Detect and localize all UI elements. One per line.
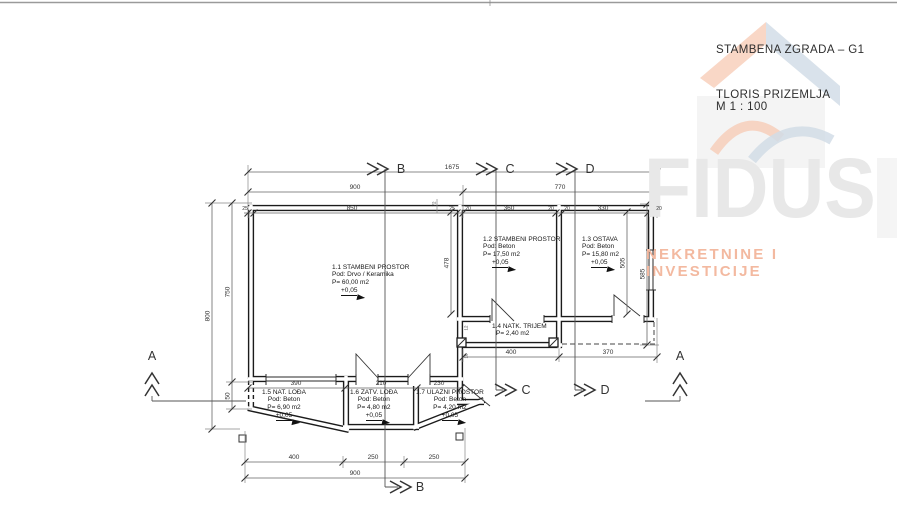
dim-bottom-total: 900 [350, 470, 361, 477]
dim-height-wing-inner: 505 [620, 258, 627, 269]
room-level-marker: +0,05 [442, 412, 458, 420]
project-title: STAMBENA ZGRADA – G1 [716, 44, 864, 56]
dim-wall-20: 20 [465, 206, 471, 212]
room-name: 1.7 ULAZNI PROSTOR [416, 389, 484, 396]
dim-trijem-width: 400 [506, 349, 517, 356]
dim-loggia-15: 390 [291, 380, 302, 387]
sheet-border [0, 0, 897, 6]
room-name: 1.5 NAT. LOĐA [262, 389, 306, 396]
room-level-marker: +0,05 [591, 259, 607, 267]
section-marker-c-top: C [505, 162, 514, 176]
section-marker-a-right: A [676, 349, 684, 363]
canopy-dashed-edge [562, 322, 657, 344]
room-label-1-7: 1.7 ULAZNI PROSTOR Pod: Beton P= 4,20 m2… [416, 389, 484, 421]
room-name: 1.4 NATK. TRIJEM [492, 323, 547, 330]
dim-bottom-seg1: 400 [289, 454, 300, 461]
room-label-1-4: 1.4 NATK. TRIJEM P= 2,40 m2 [492, 323, 547, 338]
dim-wall-72: 72 [432, 201, 437, 206]
dim-wall-18: 18 [464, 353, 469, 358]
dim-inner-main: 850 [347, 205, 358, 212]
dim-loggia-16: 210 [376, 380, 387, 387]
room-floor: Pod: Beton [262, 396, 306, 403]
dimension-lines [205, 165, 661, 483]
room-label-1-5: 1.5 NAT. LOĐA Pod: Beton P= 6,90 m2 +0,0… [262, 389, 306, 421]
dim-wall-25: 25 [242, 206, 248, 212]
section-marker-a-left: A [148, 349, 156, 363]
room-name: 1.3 OSTAVA [582, 236, 619, 243]
room-name: 1.6 ZATV. LOĐA [350, 389, 398, 396]
section-marker-d-top: D [585, 162, 594, 176]
section-lines [145, 163, 687, 493]
dim-inner-r13: 330 [598, 205, 609, 212]
room-area: P= 4,20 m2 [416, 404, 484, 411]
dim-bottom-seg3: 250 [429, 454, 440, 461]
dim-span-wing: 770 [555, 184, 566, 191]
dim-canopy-width: 370 [603, 349, 614, 356]
drawing-title: TLORIS PRIZEMLJA [716, 89, 830, 101]
section-marker-b-bottom: B [416, 480, 424, 494]
dim-height-plinth: 50 [225, 392, 232, 399]
section-marker-b-top: B [397, 162, 405, 176]
room-floor: Pod: Beton [350, 396, 398, 403]
dim-height-wing: 585 [640, 269, 647, 280]
room-level-marker: +0,05 [366, 412, 382, 420]
dim-loggia-17: 230 [434, 380, 445, 387]
room-area: P= 60,00 m2 [332, 279, 409, 286]
dim-overall-width: 1675 [445, 164, 459, 171]
room-floor: Pod: Beton [483, 243, 560, 250]
room-level-marker: +0,05 [276, 412, 292, 420]
floor-plan-sheet: FIDUS NEKRETNINE I INVESTICIJE STAMBENA … [0, 0, 897, 525]
room-area: P= 2,40 m2 [496, 330, 547, 337]
dim-wall-12: 12 [464, 325, 469, 330]
watermark-brand: FIDUS [644, 146, 876, 230]
dim-inner-r12: 360 [504, 205, 515, 212]
dim-span-main: 900 [350, 184, 361, 191]
section-marker-c-bottom: C [521, 383, 530, 397]
room-floor: Pod: Beton [416, 396, 484, 403]
room-floor: Pod: Beton [582, 243, 619, 250]
dim-bottom-seg2: 250 [368, 454, 379, 461]
room-name: 1.2 STAMBENI PROSTOR [483, 236, 560, 243]
room-area: P= 17,50 m2 [483, 251, 560, 258]
dim-wall-25: 25 [449, 206, 455, 212]
room-label-1-3: 1.3 OSTAVA Pod: Beton P= 15,80 m2 +0,05 [582, 236, 619, 268]
dim-wall-20: 20 [548, 206, 554, 212]
section-marker-d-bottom: D [600, 383, 609, 397]
dim-height-r12: 478 [444, 258, 451, 269]
dim-wall-20: 20 [656, 206, 662, 212]
watermark-tagline: NEKRETNINE I INVESTICIJE [646, 246, 897, 280]
room-area: P= 15,80 m2 [582, 251, 619, 258]
door-swings [356, 295, 640, 406]
room-area: P= 4,80 m2 [350, 404, 398, 411]
room-label-1-2: 1.2 STAMBENI PROSTOR Pod: Beton P= 17,50… [483, 236, 560, 268]
room-label-1-6: 1.6 ZATV. LOĐA Pod: Beton P= 4,80 m2 +0,… [350, 389, 398, 421]
room-level-marker: +0,05 [341, 287, 357, 295]
room-name: 1.1 STAMBENI PROSTOR [332, 264, 409, 271]
dim-height-total: 800 [205, 311, 212, 322]
room-area: P= 6,90 m2 [262, 404, 306, 411]
dim-height-main: 750 [225, 287, 232, 298]
room-floor: Pod: Drvo / Keramika [332, 271, 409, 278]
dim-wall-20: 20 [564, 206, 570, 212]
room-level-marker: +0,05 [492, 259, 508, 267]
room-label-1-1: 1.1 STAMBENI PROSTOR Pod: Drvo / Keramik… [332, 264, 409, 296]
drawing-scale: M 1 : 100 [716, 101, 768, 113]
